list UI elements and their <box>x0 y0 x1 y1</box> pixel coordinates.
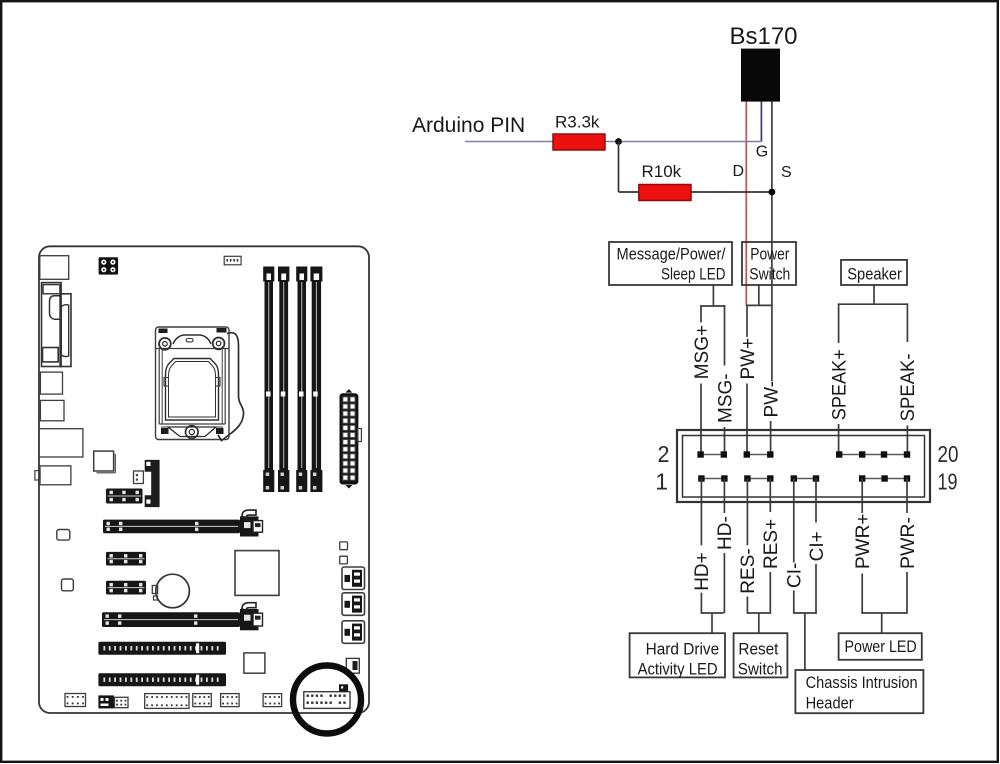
svg-text:D: D <box>732 163 744 180</box>
svg-text:PW-: PW- <box>761 381 782 418</box>
svg-text:PW+: PW+ <box>738 338 759 380</box>
svg-text:S: S <box>781 164 792 181</box>
svg-text:CI+: CI+ <box>807 531 828 561</box>
svg-text:Switch: Switch <box>738 660 783 679</box>
svg-text:Reset: Reset <box>738 640 778 659</box>
svg-text:2: 2 <box>658 441 670 467</box>
svg-text:Sleep LED: Sleep LED <box>661 265 726 284</box>
svg-text:CI-: CI- <box>785 563 806 588</box>
svg-text:RES-: RES- <box>738 548 759 593</box>
svg-text:Power LED: Power LED <box>844 637 916 656</box>
svg-text:PWR+: PWR+ <box>853 514 874 569</box>
svg-text:Bs170: Bs170 <box>729 23 797 50</box>
svg-text:SPEAK+: SPEAK+ <box>829 349 850 420</box>
svg-text:19: 19 <box>938 469 958 495</box>
svg-text:Message/Power/: Message/Power/ <box>617 245 726 264</box>
svg-text:Switch: Switch <box>749 265 790 284</box>
svg-text:Activity LED: Activity LED <box>638 660 718 679</box>
svg-text:MSG-: MSG- <box>715 373 736 423</box>
svg-text:Speaker: Speaker <box>847 264 902 283</box>
svg-text:20: 20 <box>938 441 959 467</box>
svg-text:SPEAK-: SPEAK- <box>898 353 919 421</box>
svg-text:Arduino PIN: Arduino PIN <box>412 114 525 137</box>
svg-text:Power: Power <box>750 245 789 264</box>
svg-text:R10k: R10k <box>642 162 682 181</box>
svg-text:Header: Header <box>806 694 854 713</box>
svg-text:HD-: HD- <box>715 516 736 550</box>
svg-text:Hard Drive: Hard Drive <box>646 640 720 659</box>
svg-text:RES+: RES+ <box>761 519 782 569</box>
svg-text:HD+: HD+ <box>692 552 713 591</box>
svg-text:G: G <box>756 143 768 160</box>
svg-text:1: 1 <box>655 469 668 495</box>
svg-text:PWR-: PWR- <box>898 517 919 569</box>
svg-text:MSG+: MSG+ <box>692 325 713 379</box>
svg-text:Chassis Intrusion: Chassis Intrusion <box>806 673 918 692</box>
svg-text:R3.3k: R3.3k <box>555 113 600 132</box>
